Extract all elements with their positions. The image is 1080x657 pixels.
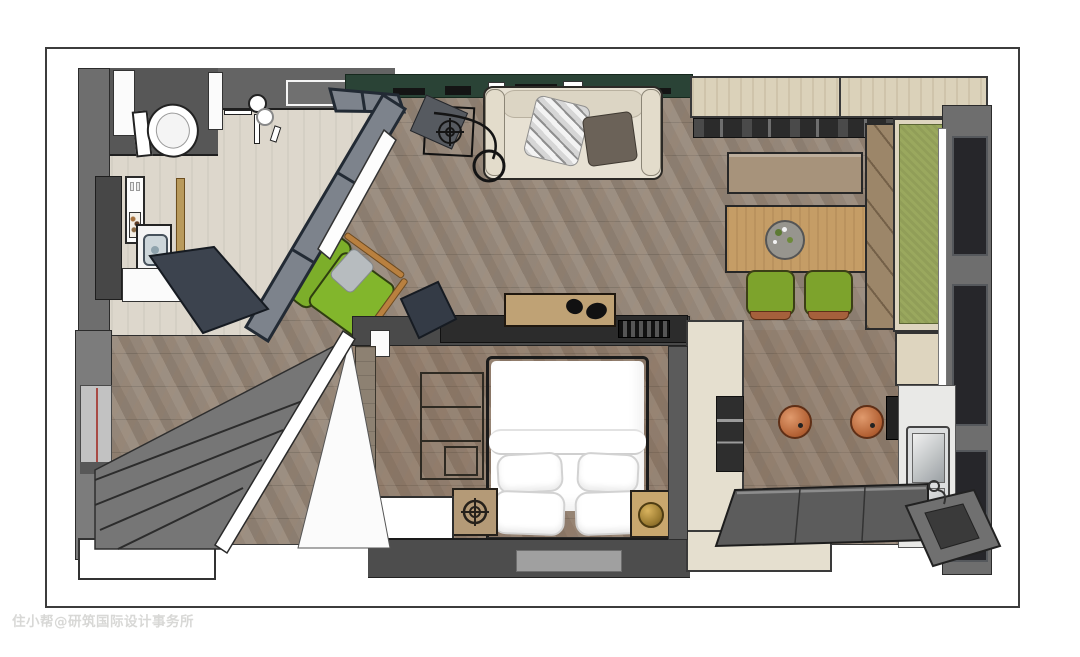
- wall-sink: [256, 108, 274, 126]
- duvet-roll: [489, 429, 646, 455]
- rug: [516, 550, 622, 572]
- sofa: [483, 86, 663, 180]
- wall-decor: [393, 88, 425, 95]
- nightstand-right: [630, 490, 672, 538]
- flower-planter: [765, 220, 805, 260]
- sink-drainboard: [912, 488, 945, 522]
- built-in-appliance: [716, 396, 744, 472]
- toilet: [131, 100, 206, 163]
- shelf-line: [422, 440, 481, 442]
- radiator-grille: [618, 320, 670, 338]
- pillow: [496, 451, 564, 494]
- shower-head-icon: [224, 94, 284, 154]
- chair-seat-edge: [750, 311, 791, 320]
- planter-greens: [775, 229, 782, 236]
- kitchen-sink: [906, 426, 950, 526]
- dining-table: [725, 205, 870, 273]
- pillow: [576, 451, 640, 494]
- vanity-mirror: [286, 80, 348, 106]
- towel-ladder: [176, 178, 185, 272]
- landing-box: [78, 538, 216, 580]
- planter-flower: [773, 240, 777, 244]
- shower-arm: [224, 110, 252, 115]
- kitchen-counter-bottom: [686, 530, 832, 572]
- wall-pillar: [208, 72, 223, 130]
- bottle: [130, 182, 134, 191]
- accent-cushion: [582, 111, 638, 167]
- washer-door-center: [151, 246, 159, 254]
- vanity-counter: [122, 268, 186, 302]
- bottle: [136, 182, 140, 191]
- cabinet-divider: [839, 78, 841, 116]
- brass-table-lamp: [638, 502, 664, 528]
- sofa-arm-left: [485, 89, 505, 176]
- niche-trim: [96, 388, 98, 468]
- dining-chair: [804, 270, 853, 316]
- dining-bench: [727, 152, 863, 194]
- floor-plan-canvas: 住小帮@研筑国际设计事务所: [0, 0, 1080, 657]
- pillow: [492, 490, 565, 536]
- black-decor: [564, 297, 585, 317]
- wall-pillar: [113, 70, 135, 136]
- bedroom-west-wall: [355, 346, 376, 496]
- niche-sill: [80, 462, 112, 474]
- nightstand-left: [452, 488, 498, 536]
- storage-cabinet: [95, 176, 122, 300]
- dining-chair: [746, 270, 795, 316]
- window-1: [952, 136, 988, 256]
- sofa-arm-right: [641, 89, 661, 176]
- copper-pendant-lamp: [850, 405, 884, 439]
- watermark: 住小帮@研筑国际设计事务所: [12, 610, 194, 630]
- black-decor: [584, 301, 608, 322]
- wall-decor: [445, 86, 471, 95]
- open-shelf-unit: [420, 372, 484, 480]
- planter-flower: [782, 227, 787, 232]
- hand-sprayer: [270, 125, 282, 142]
- headboard-shelf: [504, 293, 616, 327]
- chair-seat-edge: [808, 311, 849, 320]
- shelf-box: [444, 446, 478, 476]
- planter-greens: [787, 237, 793, 243]
- double-bed: [486, 356, 649, 546]
- shelf-line: [422, 406, 481, 408]
- washing-machine: [136, 224, 172, 274]
- window-2: [952, 284, 988, 426]
- copper-pendant-lamp: [778, 405, 812, 439]
- partition-side: [668, 346, 688, 540]
- sink-basin: [912, 433, 945, 483]
